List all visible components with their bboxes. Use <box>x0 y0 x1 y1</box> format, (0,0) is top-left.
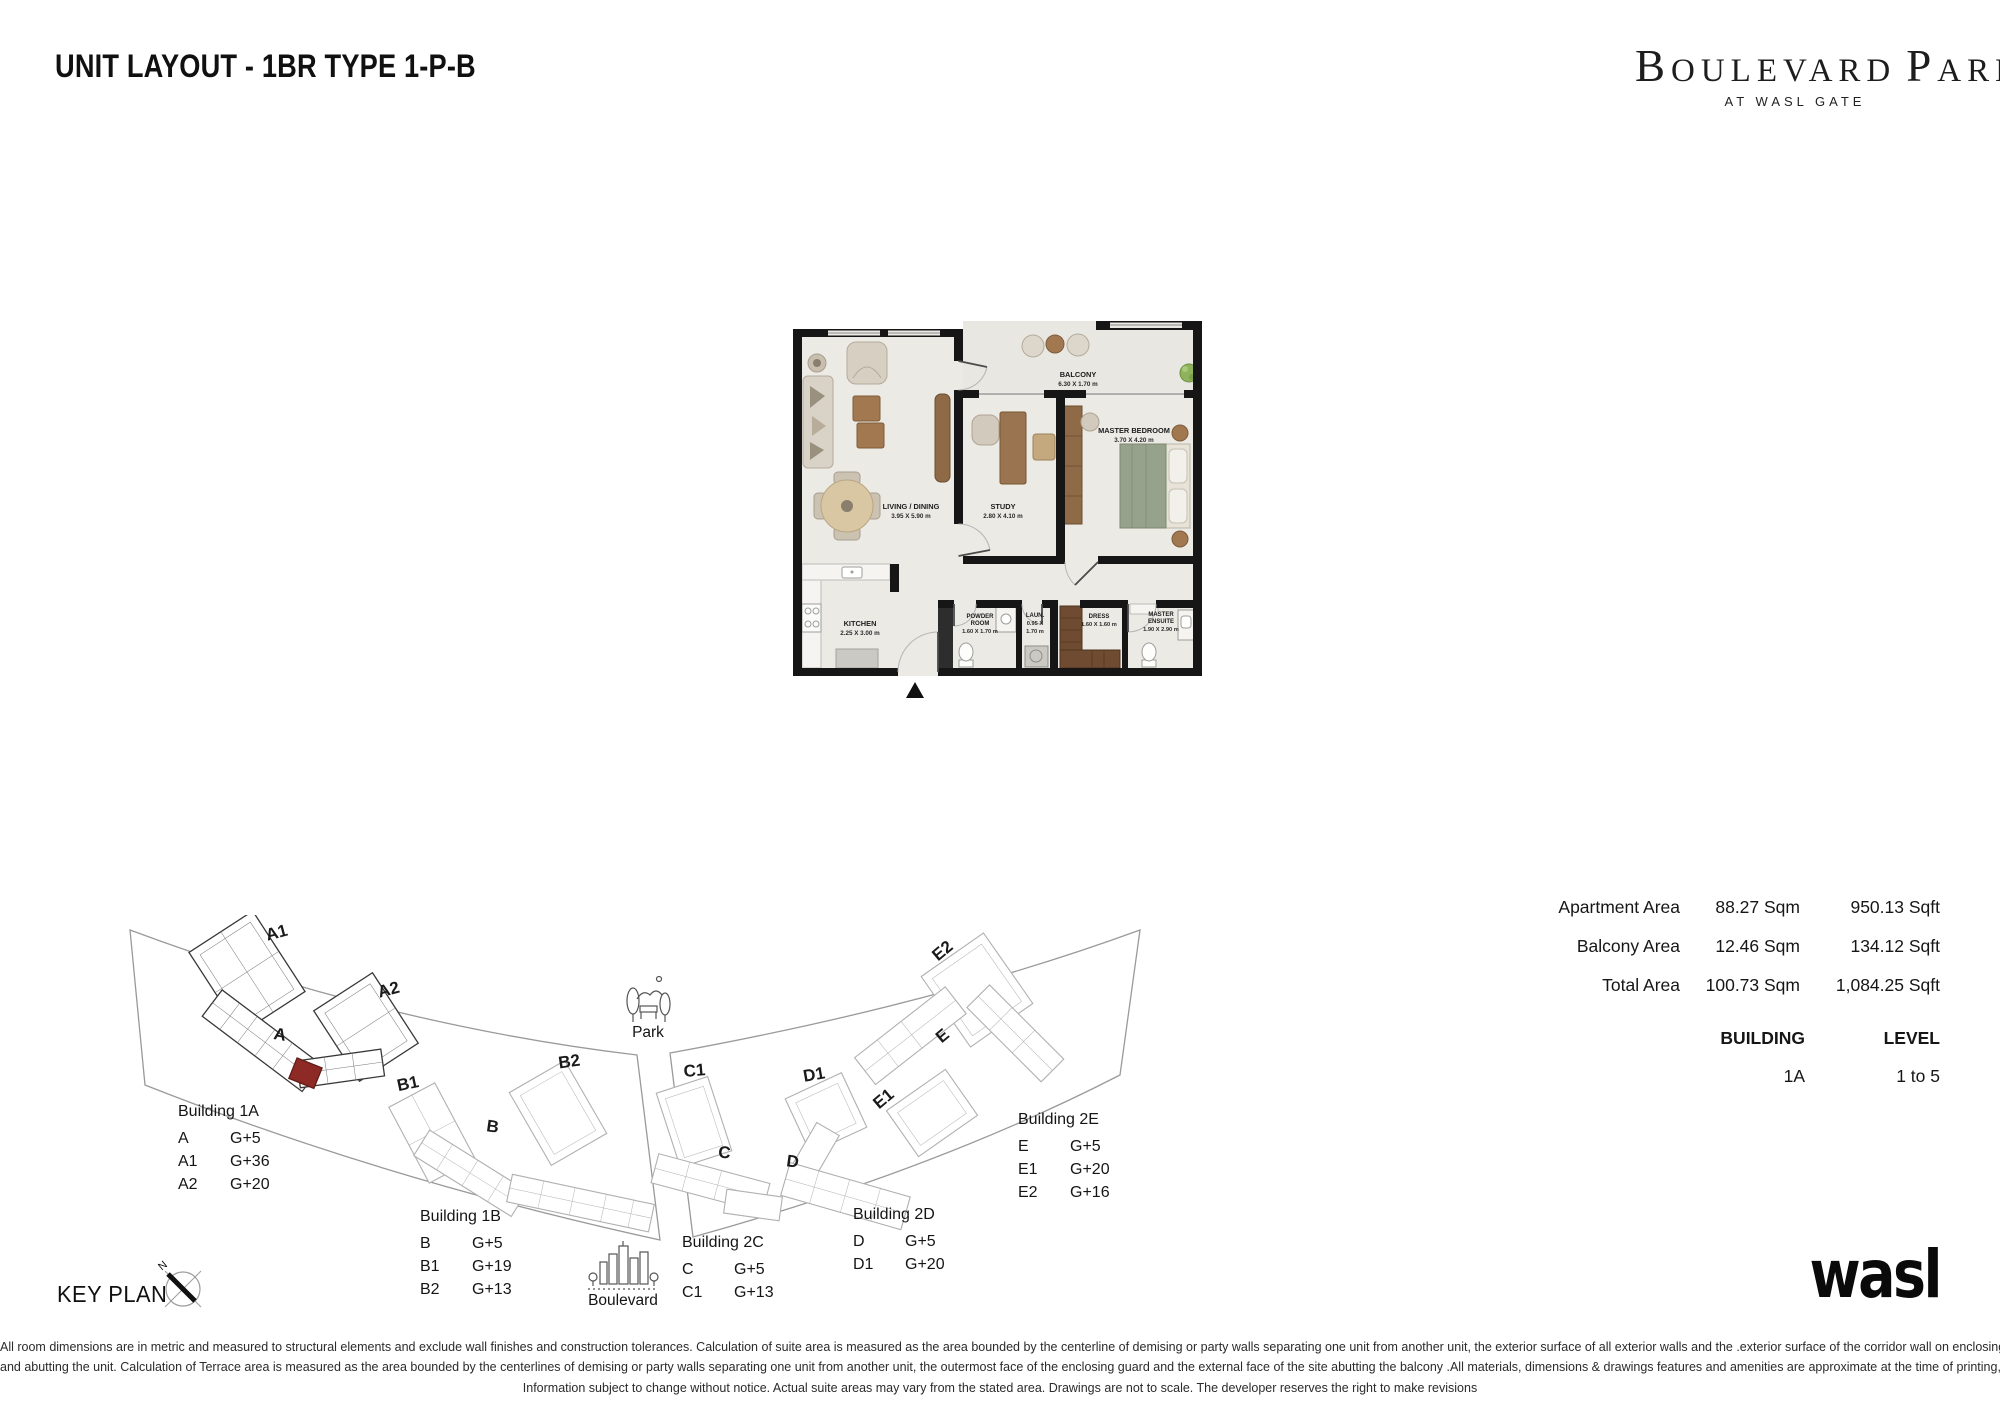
floor-plan: BALCONY 6.30 X 1.70 m MASTER BEDROOM 3.7… <box>790 316 1212 702</box>
legend-building-2e: Building 2E EG+5 E1G+20 E2G+16 <box>1018 1108 1110 1204</box>
svg-text:1.70 m: 1.70 m <box>1026 629 1044 635</box>
powder-room-label: POWDER <box>967 614 995 620</box>
disclaimer: All room dimensions are in metric and me… <box>0 1337 2000 1398</box>
balcony-label: BALCONY <box>1060 370 1097 379</box>
dress-label: DRESS <box>1089 614 1110 620</box>
laundry-label: LAUN. <box>1026 613 1045 619</box>
area-table: Apartment Area 88.27 Sqm 950.13 Sqft Bal… <box>1480 888 1940 1095</box>
svg-text:2.25 X 3.00 m: 2.25 X 3.00 m <box>840 630 880 637</box>
brochure-page: UNIT LAYOUT - 1BR TYPE 1-P-B BOULEVARDPA… <box>0 0 2000 1414</box>
living-dining-label: LIVING / DINING <box>883 502 940 511</box>
table-row: Apartment Area 88.27 Sqm 950.13 Sqft <box>1480 888 1940 927</box>
table-row: Balcony Area 12.46 Sqm 134.12 Sqft <box>1480 927 1940 966</box>
entry-arrow <box>906 682 924 698</box>
wasl-logo: wasl <box>1789 1242 1940 1308</box>
label-b: B <box>485 1116 500 1137</box>
legend-building-1b: Building 1B BG+5 B1G+19 B2G+13 <box>420 1205 512 1301</box>
compass-icon: N <box>155 1256 211 1314</box>
kitchen-label: KITCHEN <box>844 619 877 628</box>
label-d: D <box>785 1151 800 1172</box>
svg-text:1.60 X 1.60 m: 1.60 X 1.60 m <box>1081 622 1117 628</box>
compass-north-label: N <box>156 1259 170 1273</box>
svg-text:6.30 X 1.70 m: 6.30 X 1.70 m <box>1058 381 1098 388</box>
svg-text:3.70 X 4.20 m: 3.70 X 4.20 m <box>1114 437 1154 444</box>
park-label: Park <box>632 1024 664 1041</box>
svg-text:ENSUITE: ENSUITE <box>1148 619 1174 625</box>
svg-text:2.80 X 4.10 m: 2.80 X 4.10 m <box>983 513 1023 520</box>
brand-logo: BOULEVARDPARK AT WASL GATE <box>1635 40 1955 109</box>
svg-text:ROOM: ROOM <box>971 621 990 627</box>
svg-text:1.60 X 1.70 m: 1.60 X 1.70 m <box>962 629 998 635</box>
brand-name: BOULEVARDPARK <box>1635 40 1955 92</box>
page-title: UNIT LAYOUT - 1BR TYPE 1-P-B <box>55 48 476 85</box>
building-level-values: 1A 1 to 5 <box>1480 1057 1940 1095</box>
label-a2: A2 <box>376 978 402 1002</box>
svg-text:3.95 X 5.90 m: 3.95 X 5.90 m <box>891 513 931 520</box>
table-row: Total Area 100.73 Sqm 1,084.25 Sqft <box>1480 966 1940 1005</box>
legend-building-1a: Building 1A AG+5 A1G+36 A2G+20 <box>178 1100 270 1196</box>
keyplan-title: KEY PLAN <box>57 1281 167 1308</box>
label-b2: B2 <box>557 1051 581 1073</box>
label-d1: D1 <box>802 1063 827 1085</box>
boulevard-icon <box>588 1241 658 1289</box>
label-c: C <box>718 1143 732 1163</box>
boulevard-label: Boulevard <box>588 1292 658 1309</box>
study-label: STUDY <box>990 502 1015 511</box>
label-a1: A1 <box>264 921 290 945</box>
legend-building-2d: Building 2D DG+5 D1G+20 <box>853 1203 945 1276</box>
park-icon <box>627 977 670 1023</box>
label-c1: C1 <box>683 1060 706 1081</box>
building-level-headers: BUILDING LEVEL <box>1480 1019 1940 1057</box>
master-bedroom-label: MASTER BEDROOM <box>1098 426 1170 435</box>
svg-text:1.90 X 2.90 m: 1.90 X 2.90 m <box>1143 627 1179 633</box>
svg-text:0.95 X: 0.95 X <box>1027 621 1044 627</box>
legend-building-2c: Building 2C CG+5 C1G+13 <box>682 1231 774 1304</box>
brand-tagline: AT WASL GATE <box>1635 94 1955 109</box>
master-ensuite-label: MASTER <box>1148 612 1174 618</box>
